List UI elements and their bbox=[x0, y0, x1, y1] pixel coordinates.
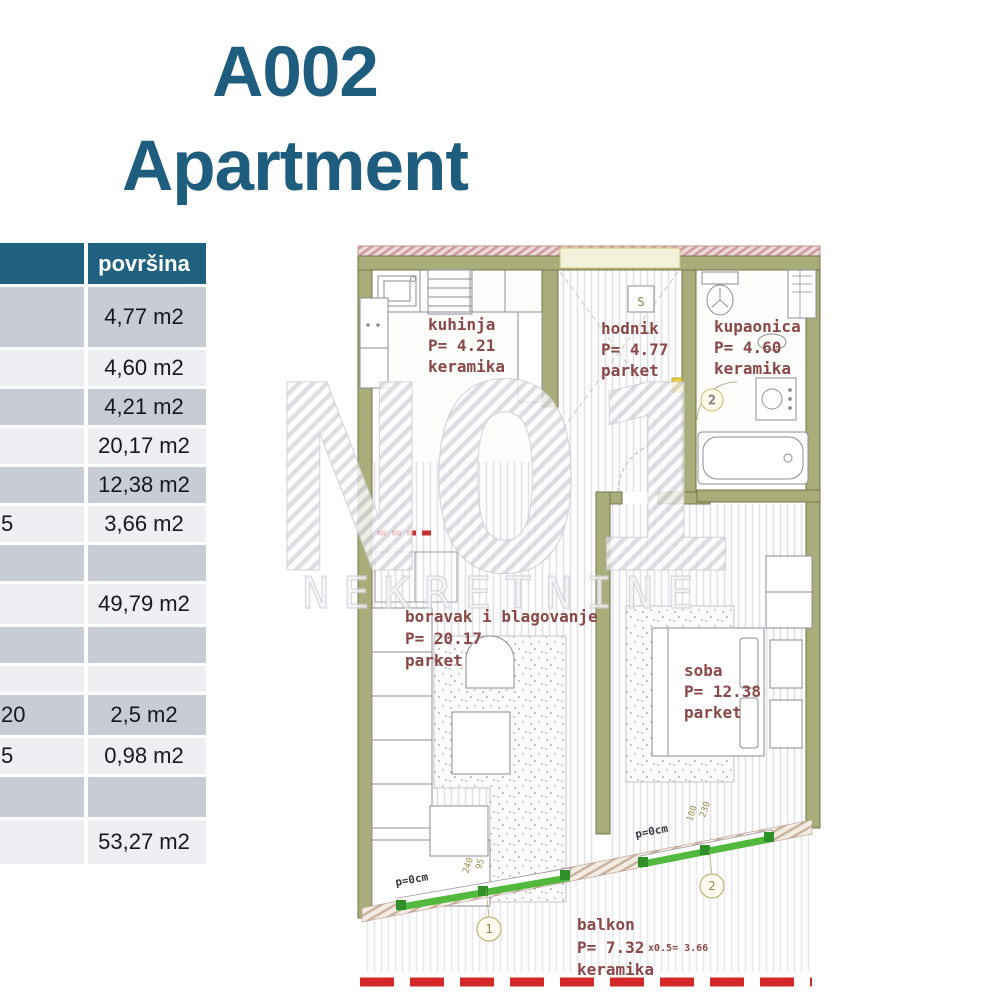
room-area: P= 7.32 bbox=[577, 938, 644, 957]
table-row: 49,79 m2 bbox=[0, 584, 206, 624]
table-row bbox=[0, 777, 206, 817]
room-area: P= 4.77 bbox=[601, 340, 668, 359]
room-name: boravak i blagovanje bbox=[405, 607, 598, 626]
area-value: 53,27 m2 bbox=[98, 829, 196, 855]
table-row bbox=[0, 666, 206, 692]
table-header-row: površina bbox=[0, 243, 206, 284]
floor-plan: S 2 bbox=[280, 238, 826, 1000]
room-name: hodnik bbox=[601, 319, 659, 338]
area-value: 0,98 m2 bbox=[104, 743, 190, 769]
door-mark-2: 2 bbox=[708, 879, 715, 893]
room-floor: parket bbox=[601, 361, 659, 380]
area-table: površina 4,77 m2 4,60 m2 4,21 m2 20,17 m… bbox=[0, 243, 206, 867]
nightstand bbox=[770, 700, 802, 748]
apartment-word: Apartment bbox=[55, 120, 535, 214]
table-row: 4,21 m2 bbox=[0, 389, 206, 425]
table-row: 12,38 m2 bbox=[0, 467, 206, 503]
table-row: 53,27 m2 bbox=[0, 820, 206, 864]
room-floor: keramika bbox=[577, 960, 654, 979]
page-title: A002 Apartment bbox=[55, 26, 535, 214]
area-value: 4,21 m2 bbox=[104, 394, 190, 420]
header-name-cell bbox=[0, 243, 84, 284]
area-value: 12,38 m2 bbox=[98, 472, 196, 498]
nightstand bbox=[770, 640, 802, 688]
room-name: soba bbox=[684, 661, 723, 680]
area-value: 20,17 m2 bbox=[98, 433, 196, 459]
room-floor: parket bbox=[405, 651, 463, 670]
pillow bbox=[740, 638, 758, 688]
room-area: P= 4.21 bbox=[428, 336, 495, 355]
area-value: 49,79 m2 bbox=[98, 591, 196, 617]
table-row: 5 3,66 m2 bbox=[0, 506, 206, 542]
door-mark-1: 1 bbox=[485, 922, 492, 936]
side-table bbox=[430, 806, 488, 856]
entry-door-zone bbox=[560, 248, 680, 268]
area-value: 3,66 m2 bbox=[104, 511, 190, 537]
coffee-table bbox=[452, 712, 510, 774]
table-row: 4,60 m2 bbox=[0, 350, 206, 386]
pillow bbox=[740, 698, 758, 748]
area-value: 4,60 m2 bbox=[104, 355, 190, 381]
shower-unit bbox=[788, 270, 816, 318]
table-row bbox=[0, 627, 206, 663]
room-area: P= 12.38 bbox=[684, 682, 761, 701]
room-name: balkon bbox=[577, 915, 635, 934]
table-row: 4,77 m2 bbox=[0, 287, 206, 347]
table-row: 20,17 m2 bbox=[0, 428, 206, 464]
table-row: 20 2,5 m2 bbox=[0, 695, 206, 735]
table-row: 5 0,98 m2 bbox=[0, 738, 206, 774]
apartment-code: A002 bbox=[55, 26, 535, 120]
room-area: P= 4.60 bbox=[714, 338, 781, 357]
header-area-label: površina bbox=[98, 251, 196, 277]
room-name: kuhinja bbox=[428, 315, 495, 334]
room-floor: parket bbox=[684, 703, 742, 722]
watermark: NO1 NEKRETNINE bbox=[280, 331, 738, 631]
toilet-tank bbox=[702, 272, 738, 284]
sofa bbox=[372, 608, 432, 876]
room-area-note: x0.5= 3.66 bbox=[648, 943, 708, 954]
switch-mark: S bbox=[637, 295, 644, 309]
room-floor: keramika bbox=[714, 359, 791, 378]
right-wall bbox=[806, 270, 820, 828]
room-floor: keramika bbox=[428, 357, 505, 376]
table-row bbox=[0, 545, 206, 581]
room-name: kupaonica bbox=[714, 317, 801, 336]
room-area: P= 20.17 bbox=[405, 629, 482, 648]
header-area-cell: površina bbox=[88, 243, 206, 284]
area-value: 4,77 m2 bbox=[104, 304, 190, 330]
area-value: 2,5 m2 bbox=[110, 702, 183, 728]
